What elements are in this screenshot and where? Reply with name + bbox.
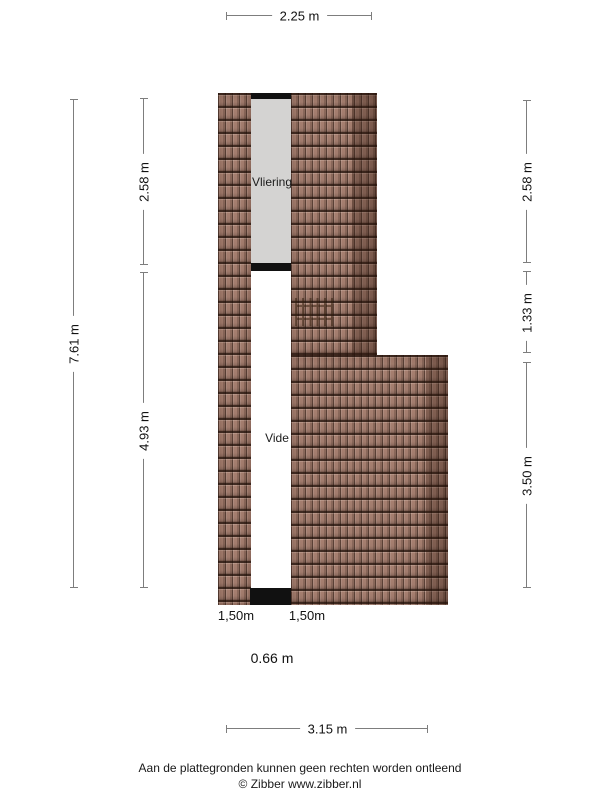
dim-top-width: 2.25 m [227, 15, 372, 16]
floorplan-page: Vliering Vide 2.25 m 7.61 m 2.58 m 4.93 … [0, 0, 600, 800]
dim-top-width-label: 2.25 m [272, 9, 328, 24]
roof-edge-shade-lower [426, 355, 448, 605]
disclaimer-text: Aan de plattegronden kunnen geen rechten… [0, 761, 600, 775]
dim-right-lower-label: 3.50 m [520, 448, 535, 504]
roof-right-lower [291, 355, 448, 605]
dim-right-lower: 3.50 m [526, 363, 527, 588]
ladder-rungs [295, 298, 333, 326]
wall-bottom [250, 588, 291, 605]
credit-text: © Zibber www.zibber.nl [0, 777, 600, 791]
wall-middle [251, 263, 291, 271]
void-width-label: 0.66 m [251, 650, 294, 666]
roof-edge-shade-upper [352, 93, 377, 355]
dim-left-lower: 4.93 m [143, 273, 144, 588]
headroom-label-right: 1,50m [289, 608, 325, 623]
dim-left-lower-label: 4.93 m [137, 403, 152, 459]
dim-right-middle-label: 1.33 m [520, 285, 535, 341]
wall-top [251, 93, 291, 99]
vide-area [251, 271, 291, 588]
dim-left-total: 7.61 m [73, 100, 74, 588]
room-label-vliering: Vliering [252, 175, 292, 189]
dim-bottom-width: 3.15 m [227, 728, 428, 729]
headroom-label-left: 1,50m [218, 608, 254, 623]
dim-left-upper-label: 2.58 m [137, 154, 152, 210]
loft-ladder-icon [295, 294, 333, 338]
dim-left-total-label: 7.61 m [67, 316, 82, 372]
roof-left-strip [218, 93, 251, 605]
dim-right-upper-label: 2.58 m [520, 154, 535, 210]
dim-bottom-width-label: 3.15 m [300, 722, 356, 737]
dim-left-upper: 2.58 m [143, 99, 144, 265]
dim-right-middle: 1.33 m [526, 272, 527, 353]
dim-right-upper: 2.58 m [526, 101, 527, 263]
room-label-vide: Vide [265, 431, 289, 445]
